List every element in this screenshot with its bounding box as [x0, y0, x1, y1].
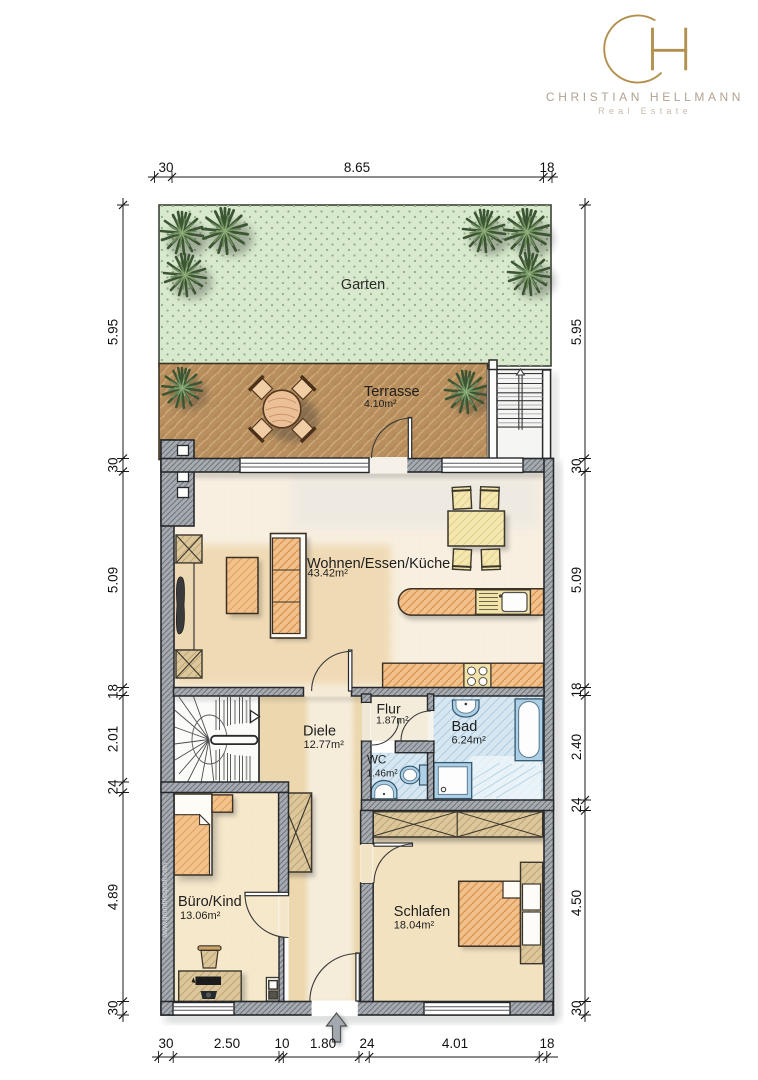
svg-text:12.77m²: 12.77m²	[304, 739, 345, 751]
svg-text:CHRISTIAN HELLMANN: CHRISTIAN HELLMANN	[546, 90, 744, 104]
svg-text:WC: WC	[367, 755, 386, 767]
svg-text:Schlafen: Schlafen	[394, 904, 450, 920]
svg-text:18: 18	[106, 684, 121, 699]
svg-text:1.87m²: 1.87m²	[376, 715, 409, 727]
svg-text:Diele: Diele	[303, 724, 336, 740]
svg-text:4.50: 4.50	[569, 890, 584, 916]
svg-text:www.grundrissprofi.com: www.grundrissprofi.com	[162, 863, 169, 938]
svg-text:30: 30	[106, 457, 121, 472]
svg-text:Bad: Bad	[452, 719, 478, 735]
svg-text:8.65: 8.65	[344, 160, 370, 175]
svg-text:18: 18	[569, 682, 584, 697]
svg-text:4.89: 4.89	[106, 884, 121, 910]
svg-text:Garten: Garten	[341, 277, 385, 293]
svg-text:4.01: 4.01	[442, 1036, 468, 1051]
svg-text:18: 18	[539, 160, 554, 175]
svg-text:30: 30	[106, 1000, 121, 1015]
svg-text:2.01: 2.01	[106, 726, 121, 752]
svg-text:30: 30	[569, 458, 584, 473]
svg-text:10: 10	[274, 1036, 289, 1051]
svg-text:5.09: 5.09	[569, 567, 584, 593]
svg-text:Real Estate: Real Estate	[598, 106, 692, 116]
svg-text:30: 30	[158, 1036, 173, 1051]
svg-text:6.24m²: 6.24m²	[452, 735, 487, 747]
svg-text:24: 24	[106, 779, 121, 795]
svg-text:5.95: 5.95	[569, 319, 584, 345]
svg-text:24: 24	[569, 797, 584, 813]
svg-text:5.95: 5.95	[106, 319, 121, 345]
svg-text:30: 30	[569, 1000, 584, 1015]
svg-text:1.46m²: 1.46m²	[367, 769, 399, 780]
svg-text:18: 18	[539, 1036, 554, 1051]
svg-text:2.50: 2.50	[214, 1036, 240, 1051]
svg-text:43.42m²: 43.42m²	[308, 568, 349, 580]
svg-text:18.04m²: 18.04m²	[394, 920, 435, 932]
svg-text:24: 24	[359, 1036, 375, 1051]
svg-text:4.10m²: 4.10m²	[364, 398, 397, 410]
svg-text:13.06m²: 13.06m²	[180, 910, 221, 922]
svg-text:Büro/Kind: Büro/Kind	[178, 894, 242, 910]
svg-text:5.09: 5.09	[106, 567, 121, 593]
svg-text:30: 30	[158, 160, 173, 175]
svg-text:1.80: 1.80	[310, 1036, 336, 1051]
svg-text:2.40: 2.40	[569, 734, 584, 760]
